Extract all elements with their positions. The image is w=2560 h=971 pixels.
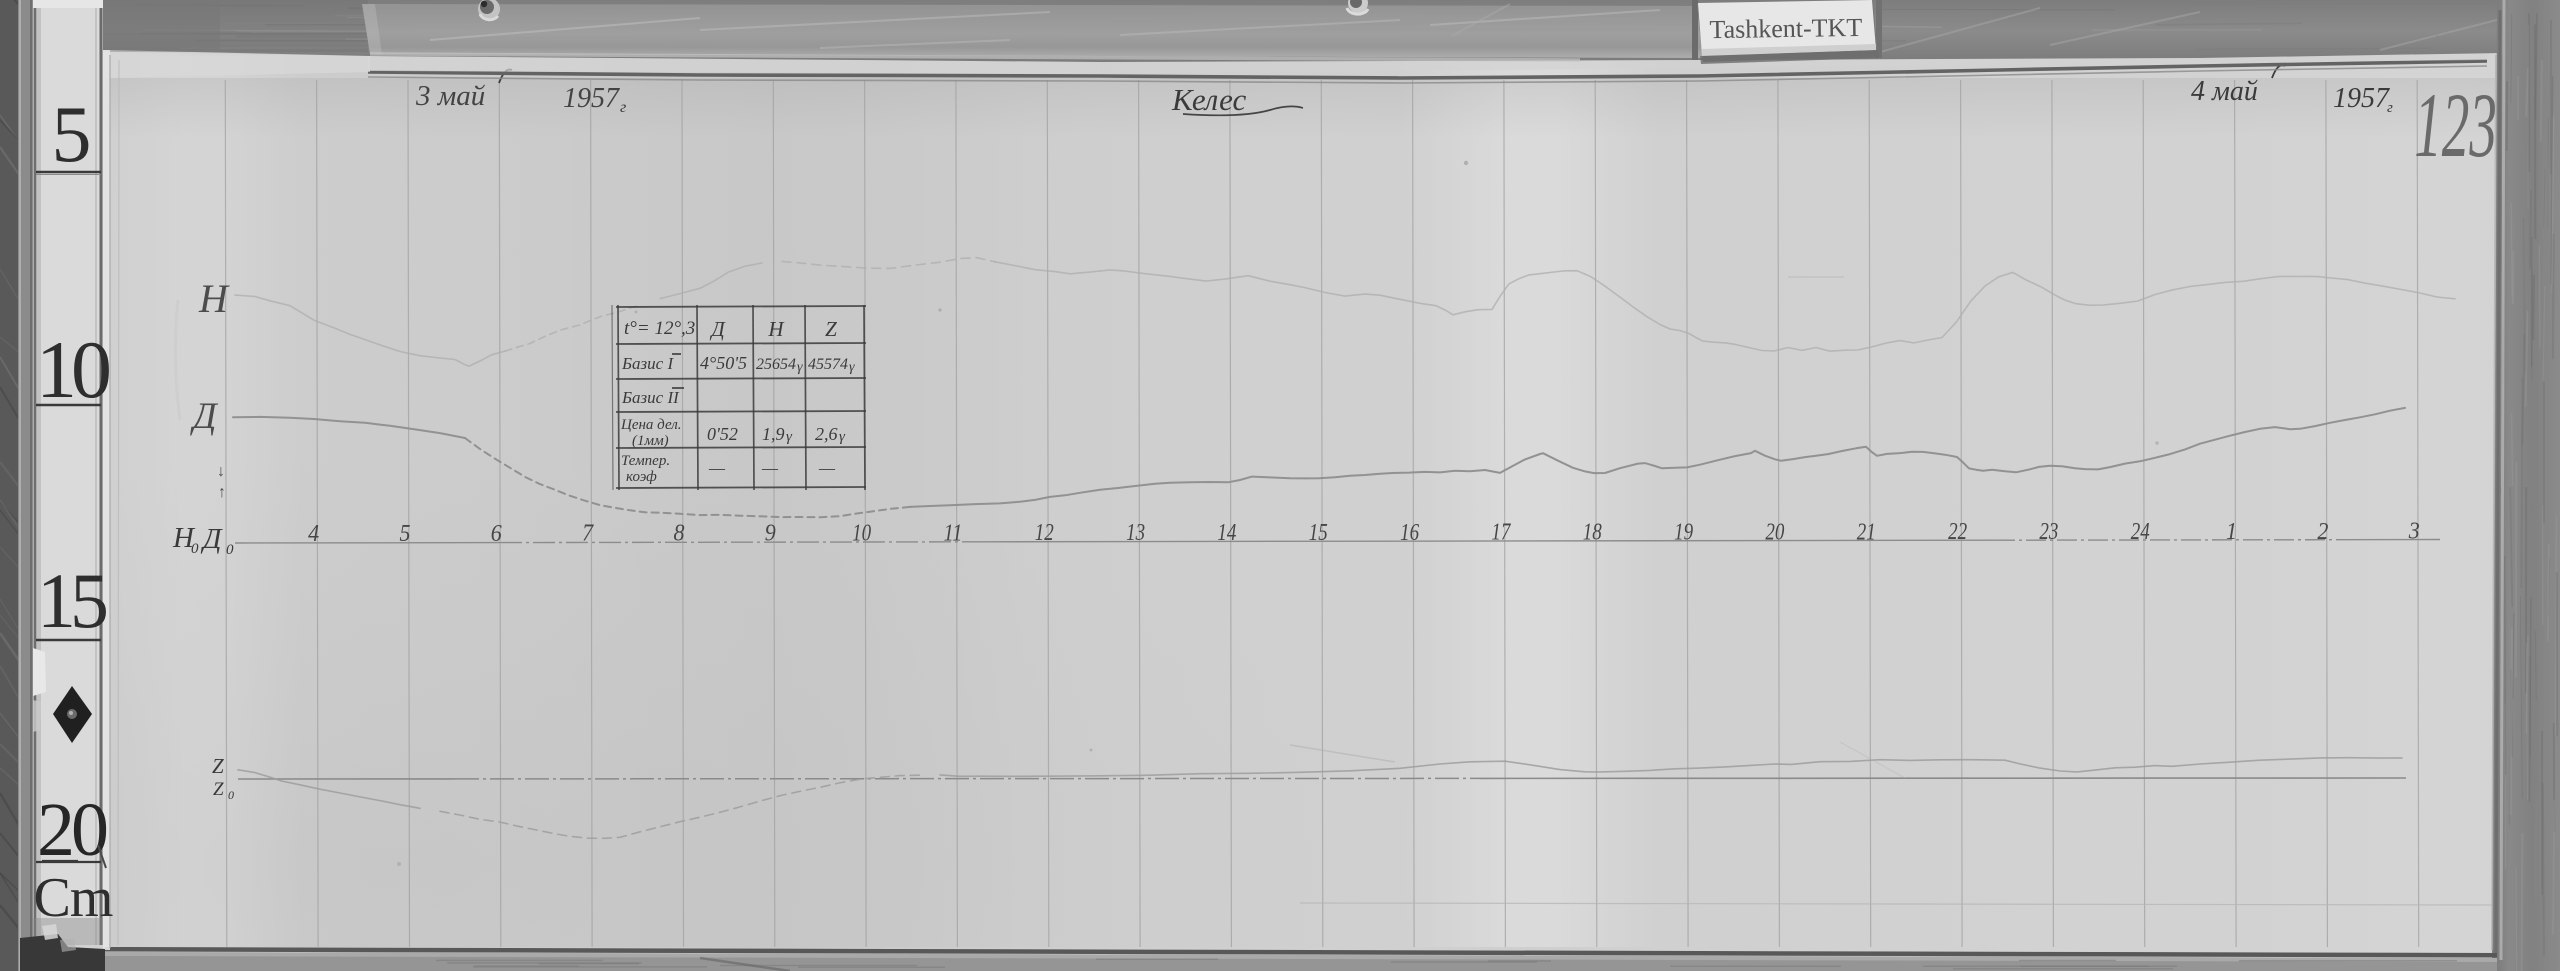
- svg-text:5: 5: [52, 91, 89, 179]
- svg-text:Z: Z: [212, 754, 224, 778]
- svg-text:—: —: [818, 458, 836, 478]
- svg-text:21: 21: [1857, 519, 1876, 545]
- svg-text:Келес: Келес: [1171, 82, 1246, 117]
- svg-text:23: 23: [2039, 519, 2058, 545]
- svg-text:Д: Д: [200, 523, 223, 555]
- svg-text:t°= 12°,3: t°= 12°,3: [624, 318, 695, 339]
- svg-text:Н: Н: [767, 317, 785, 341]
- svg-text:0'52: 0'52: [707, 424, 738, 444]
- svg-text:5: 5: [399, 521, 410, 547]
- svg-text:1957: 1957: [563, 83, 620, 114]
- svg-text:9: 9: [765, 521, 776, 547]
- svg-text:1957: 1957: [2333, 83, 2390, 114]
- svg-text:Tashkent-TKT: Tashkent-TKT: [1709, 13, 1862, 44]
- svg-text:24: 24: [2131, 519, 2150, 545]
- svg-text:Z: Z: [213, 779, 224, 800]
- svg-text:10: 10: [852, 520, 871, 546]
- svg-text:3 май: 3 май: [415, 80, 486, 112]
- svg-text:13: 13: [1126, 520, 1145, 546]
- svg-text:2,6: 2,6: [815, 424, 838, 444]
- svg-text:19: 19: [1674, 520, 1693, 546]
- svg-text:γ: γ: [849, 360, 855, 375]
- svg-text:Н: Н: [198, 276, 230, 321]
- svg-text:—: —: [708, 458, 726, 478]
- svg-text:15: 15: [1309, 520, 1328, 546]
- svg-text:г: г: [2387, 100, 2393, 116]
- svg-text:22: 22: [1948, 519, 1967, 545]
- svg-text:4 май: 4 май: [2191, 76, 2258, 107]
- svg-text:14: 14: [1217, 520, 1236, 546]
- svg-text:18: 18: [1583, 520, 1602, 546]
- svg-text:15: 15: [37, 557, 106, 644]
- svg-text:↓: ↓: [217, 463, 225, 480]
- svg-text:25654: 25654: [756, 356, 796, 373]
- svg-text:12: 12: [1035, 520, 1054, 546]
- svg-text:0: 0: [226, 542, 234, 558]
- svg-text:20: 20: [37, 788, 107, 872]
- svg-text:45574: 45574: [808, 356, 848, 373]
- svg-text:11: 11: [943, 520, 962, 546]
- svg-text:7: 7: [582, 521, 594, 547]
- svg-text:2: 2: [2317, 519, 2328, 545]
- svg-text:8: 8: [673, 521, 684, 547]
- svg-text:Цена дел.: Цена дел.: [620, 417, 682, 433]
- svg-text:16: 16: [1400, 520, 1419, 546]
- svg-text:4: 4: [308, 521, 319, 547]
- svg-text:1: 1: [2226, 519, 2237, 545]
- svg-text:(1мм): (1мм): [632, 433, 669, 449]
- svg-text:4°50'5: 4°50'5: [700, 353, 747, 373]
- svg-text:10: 10: [36, 324, 109, 415]
- svg-text:г: г: [620, 99, 626, 116]
- svg-text:γ: γ: [797, 360, 803, 375]
- svg-text:20: 20: [1765, 519, 1784, 545]
- svg-text:6: 6: [491, 521, 502, 547]
- svg-text:123: 123: [2414, 75, 2497, 177]
- svg-text:Базис II: Базис II: [621, 388, 680, 407]
- svg-text:коэф: коэф: [626, 469, 657, 485]
- svg-text:—: —: [761, 458, 779, 478]
- svg-text:3: 3: [2408, 519, 2420, 545]
- svg-text:0: 0: [191, 541, 199, 557]
- svg-text:Д: Д: [190, 396, 219, 437]
- svg-text:1,9: 1,9: [762, 424, 785, 444]
- svg-text:0: 0: [228, 788, 234, 802]
- svg-text:17: 17: [1491, 520, 1511, 546]
- svg-text:Z: Z: [825, 317, 837, 341]
- svg-text:↑: ↑: [218, 484, 226, 501]
- svg-text:Базис I: Базис I: [621, 354, 674, 373]
- svg-text:Темпер.: Темпер.: [621, 453, 670, 469]
- svg-text:Д: Д: [709, 317, 726, 341]
